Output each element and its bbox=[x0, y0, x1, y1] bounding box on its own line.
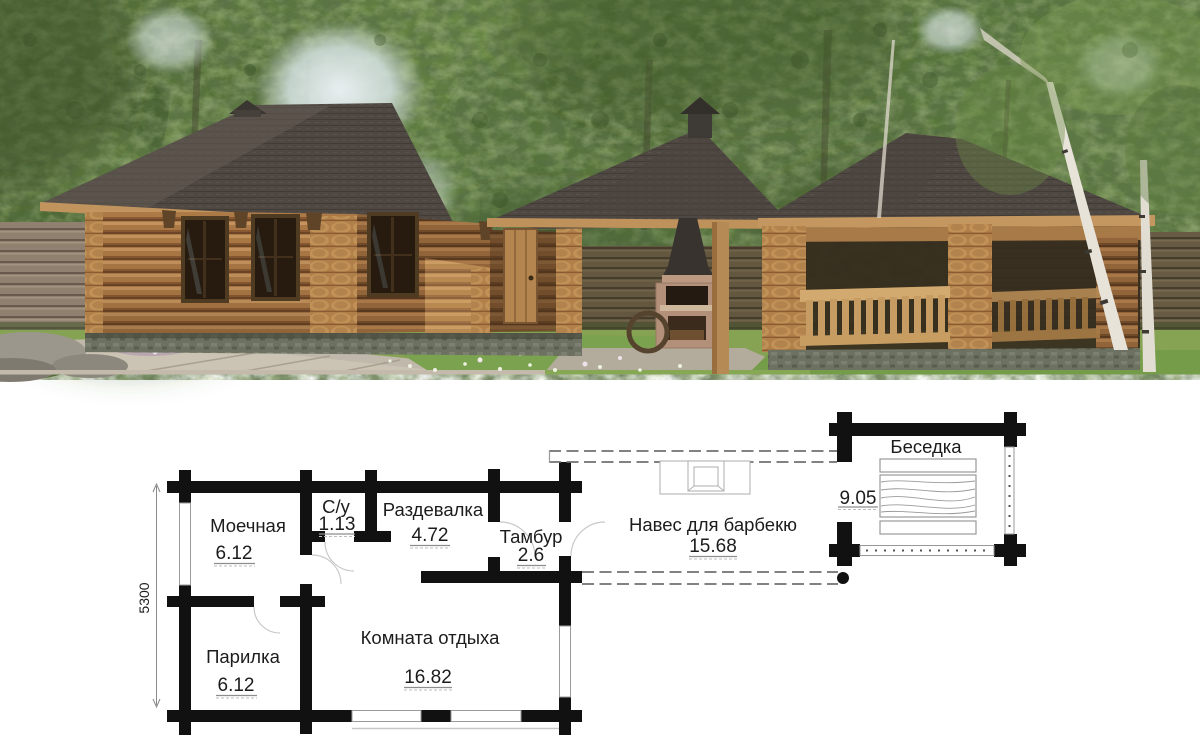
svg-text:Моечная: Моечная bbox=[210, 515, 286, 536]
svg-text:Беседка: Беседка bbox=[890, 436, 962, 457]
svg-text:5300: 5300 bbox=[136, 582, 152, 613]
svg-text:9.05: 9.05 bbox=[840, 488, 877, 509]
svg-text:4.72: 4.72 bbox=[412, 525, 449, 546]
svg-text:15.68: 15.68 bbox=[689, 536, 737, 557]
svg-text:6.12: 6.12 bbox=[216, 543, 253, 564]
svg-text:Тамбур: Тамбур bbox=[500, 526, 563, 547]
svg-text:2.6: 2.6 bbox=[518, 545, 544, 566]
svg-text:Комната отдыха: Комната отдыха bbox=[361, 627, 500, 648]
svg-text:6.12: 6.12 bbox=[218, 675, 255, 696]
svg-text:Парилка: Парилка bbox=[206, 646, 281, 667]
svg-text:1.13: 1.13 bbox=[319, 514, 356, 535]
svg-text:Раздевалка: Раздевалка bbox=[383, 499, 484, 520]
svg-text:Навес для барбекю: Навес для барбекю bbox=[629, 514, 797, 535]
svg-text:16.82: 16.82 bbox=[404, 667, 452, 688]
